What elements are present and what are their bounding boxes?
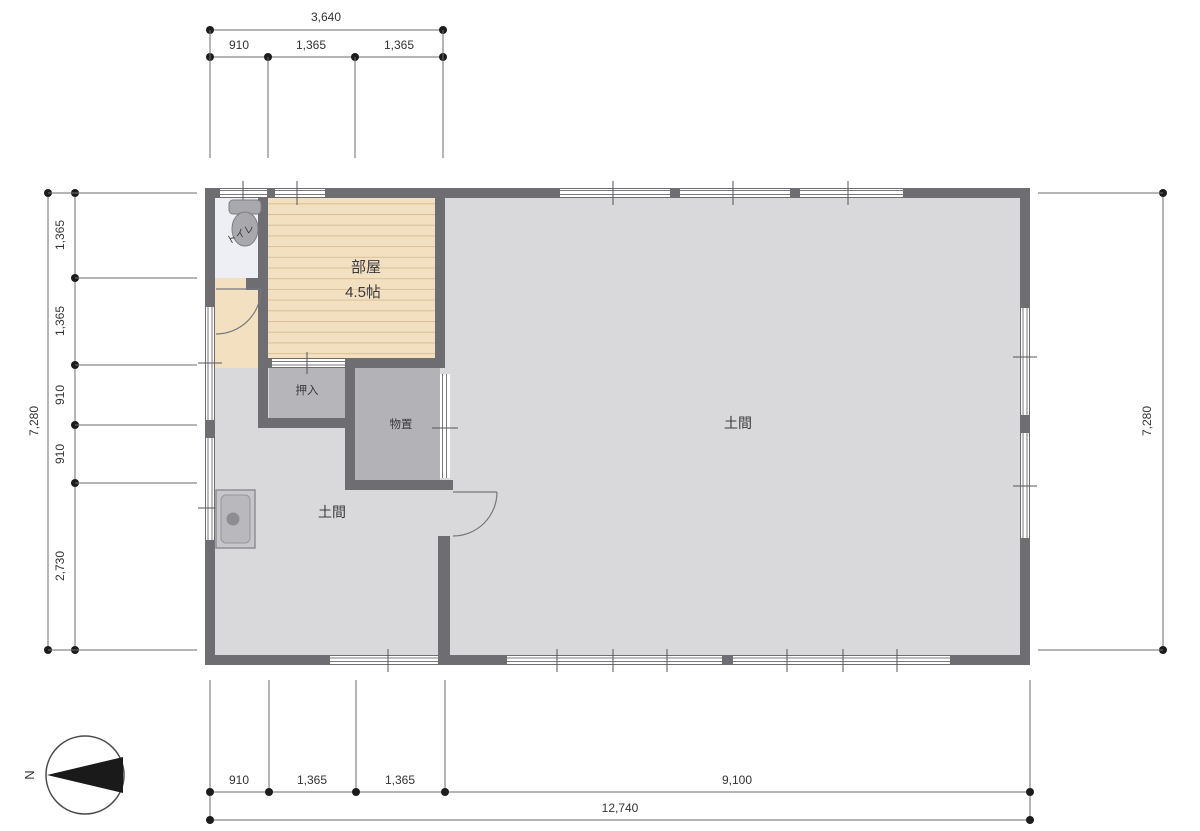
- dimension-right: 7,280: [1038, 189, 1167, 654]
- dim-bottom-seg2: 1,365: [297, 773, 327, 787]
- doma-main-label: 土間: [724, 415, 752, 431]
- hallway-floor: [215, 278, 264, 368]
- wall-toilet-hall-chunk: [246, 278, 268, 290]
- room-label: 部屋: [351, 259, 381, 276]
- dim-left-seg2: 1,365: [53, 306, 67, 336]
- dim-top-seg1: 910: [229, 38, 249, 52]
- dim-left-overall: 7,280: [27, 406, 41, 436]
- floor-plan-page: トイレ 部屋 4.5帖 押入 物置 土間 土間 3,640 910 1,365 …: [0, 0, 1200, 831]
- room-floor: [268, 198, 435, 358]
- sink-icon: [216, 490, 255, 548]
- wall-east: [1020, 188, 1030, 665]
- floor-plan-drawing: トイレ 部屋 4.5帖 押入 物置 土間 土間 3,640 910 1,365 …: [0, 0, 1200, 831]
- wall-closet-south: [258, 418, 355, 428]
- storage-label: 物置: [390, 417, 413, 431]
- dimension-top: 3,640 910 1,365 1,365: [206, 10, 447, 158]
- wall-doma-partition: [438, 536, 450, 665]
- doma-left-label: 土間: [318, 504, 346, 520]
- dim-left-seg5: 2,730: [53, 551, 67, 581]
- north-label: N: [22, 770, 37, 779]
- closet-label: 押入: [296, 383, 319, 397]
- room-size-label: 4.5帖: [345, 284, 381, 301]
- wall-toilet-room-partition: [258, 188, 268, 428]
- dim-right-overall: 7,280: [1140, 406, 1154, 436]
- dim-bottom-seg3: 1,365: [385, 773, 415, 787]
- wall-west: [205, 188, 215, 665]
- dim-bottom-seg4: 9,100: [722, 773, 752, 787]
- dim-top-overall: 3,640: [311, 10, 341, 24]
- dim-top-seg3: 1,365: [384, 38, 414, 52]
- dim-bottom-seg1: 910: [229, 773, 249, 787]
- wall-storage-west: [345, 358, 355, 490]
- dim-left-seg1: 1,365: [53, 220, 67, 250]
- wall-storage-south: [345, 480, 453, 490]
- dimension-bottom: 910 1,365 1,365 9,100 12,740: [206, 680, 1034, 824]
- dimension-left: 7,280 1,365 1,365 910 910 2,730: [27, 189, 197, 654]
- dim-top-seg2: 1,365: [296, 38, 326, 52]
- dim-bottom-overall: 12,740: [602, 801, 639, 815]
- compass: N: [22, 736, 124, 814]
- dim-left-seg4: 910: [53, 444, 67, 464]
- wall-room-east: [435, 188, 445, 368]
- dim-left-seg3: 910: [53, 385, 67, 405]
